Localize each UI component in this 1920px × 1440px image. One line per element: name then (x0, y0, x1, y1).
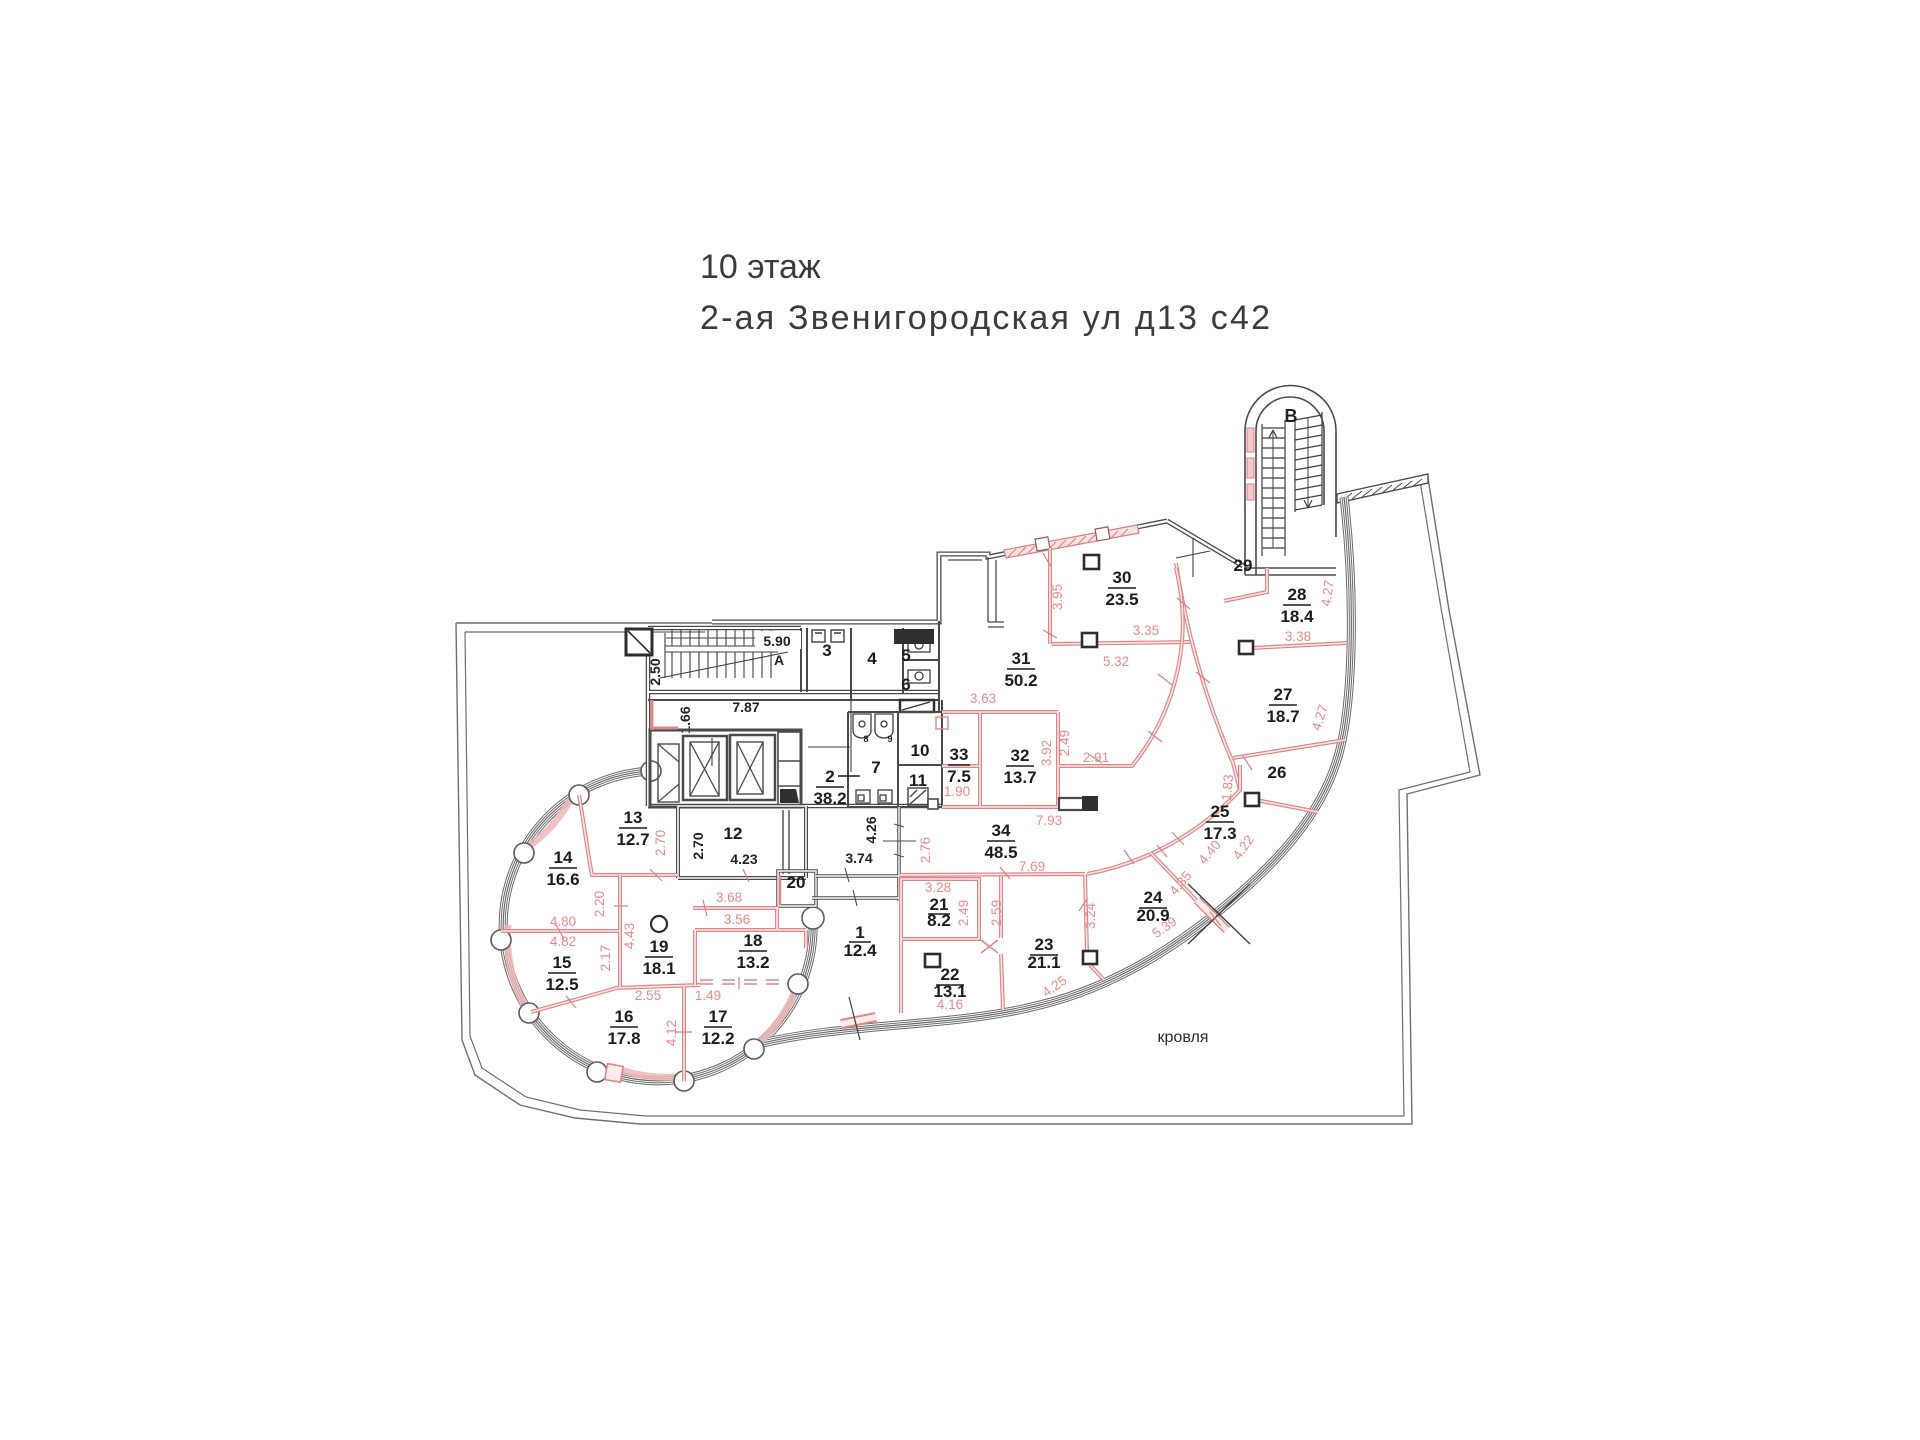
svg-text:4: 4 (867, 649, 877, 668)
svg-text:21.1: 21.1 (1027, 953, 1060, 972)
svg-text:18: 18 (744, 931, 763, 950)
svg-text:26: 26 (1268, 763, 1287, 782)
svg-text:4.23: 4.23 (730, 851, 757, 867)
svg-text:3.74: 3.74 (845, 850, 872, 866)
svg-text:7.69: 7.69 (1019, 859, 1045, 874)
svg-text:6: 6 (901, 675, 910, 694)
svg-text:50.2: 50.2 (1004, 671, 1037, 690)
svg-text:4.43: 4.43 (622, 923, 637, 949)
svg-text:3.38: 3.38 (1285, 629, 1311, 644)
svg-text:4.26: 4.26 (863, 816, 879, 843)
svg-text:3.92: 3.92 (1039, 740, 1054, 766)
svg-text:23: 23 (1035, 935, 1054, 954)
svg-text:25: 25 (1211, 802, 1230, 821)
svg-text:28: 28 (1288, 585, 1307, 604)
svg-text:11: 11 (909, 771, 927, 790)
svg-text:4.80: 4.80 (550, 914, 576, 929)
svg-text:2: 2 (825, 767, 834, 786)
svg-text:3.56: 3.56 (724, 912, 750, 927)
svg-text:17: 17 (709, 1007, 728, 1026)
svg-text:2.70: 2.70 (690, 832, 706, 859)
svg-text:1.49: 1.49 (695, 988, 721, 1003)
svg-text:2.20: 2.20 (592, 891, 607, 917)
svg-text:4.16: 4.16 (937, 997, 963, 1012)
svg-text:33: 33 (950, 745, 969, 764)
svg-text:5.32: 5.32 (1103, 654, 1129, 669)
svg-text:2.59: 2.59 (989, 900, 1004, 926)
svg-text:7: 7 (871, 758, 880, 777)
svg-text:3.28: 3.28 (925, 880, 951, 895)
svg-text:2.50: 2.50 (647, 658, 663, 685)
svg-text:18.4: 18.4 (1280, 607, 1314, 626)
svg-text:48.5: 48.5 (984, 843, 1017, 862)
svg-text:3.24: 3.24 (1083, 902, 1098, 929)
svg-text:15: 15 (553, 953, 572, 972)
svg-text:1.83: 1.83 (1219, 774, 1236, 801)
svg-text:1: 1 (855, 923, 864, 942)
svg-text:1.90: 1.90 (944, 784, 970, 799)
svg-text:4.12: 4.12 (664, 1020, 679, 1046)
svg-text:34: 34 (992, 821, 1011, 840)
svg-text:30: 30 (1113, 568, 1132, 587)
svg-text:20: 20 (787, 873, 806, 892)
svg-text:16.6: 16.6 (546, 870, 579, 889)
svg-text:14: 14 (554, 848, 573, 867)
svg-text:27: 27 (1274, 685, 1293, 704)
svg-text:2.91: 2.91 (1083, 750, 1109, 765)
svg-text:13: 13 (624, 808, 643, 827)
svg-text:9: 9 (887, 734, 892, 744)
svg-text:5.90: 5.90 (763, 633, 790, 649)
svg-text:8.2: 8.2 (927, 911, 951, 930)
svg-text:3.68: 3.68 (716, 890, 742, 905)
svg-text:31: 31 (1012, 649, 1031, 668)
svg-text:16: 16 (615, 1007, 634, 1026)
svg-text:12.7: 12.7 (616, 830, 649, 849)
svg-text:12.5: 12.5 (545, 975, 578, 994)
svg-text:13.7: 13.7 (1003, 768, 1036, 787)
svg-text:17.3: 17.3 (1203, 824, 1236, 843)
svg-text:23.5: 23.5 (1105, 590, 1138, 609)
svg-text:7.87: 7.87 (732, 699, 759, 715)
svg-text:2.76: 2.76 (918, 837, 933, 863)
svg-text:13.2: 13.2 (736, 953, 769, 972)
svg-text:3: 3 (822, 641, 831, 660)
svg-text:2.70: 2.70 (653, 830, 668, 856)
svg-text:В: В (1285, 406, 1298, 426)
svg-text:10 этаж: 10 этаж (700, 248, 821, 286)
svg-text:7.93: 7.93 (1036, 813, 1062, 828)
svg-text:кровля: кровля (1158, 1029, 1209, 1046)
svg-text:2.17: 2.17 (598, 945, 613, 971)
svg-text:2.55: 2.55 (635, 988, 661, 1003)
svg-text:12.2: 12.2 (701, 1029, 734, 1048)
svg-text:А: А (774, 652, 784, 668)
svg-text:24: 24 (1144, 888, 1163, 907)
svg-text:19: 19 (650, 937, 669, 956)
svg-text:2-ая Звенигородская ул д13 с42: 2-ая Звенигородская ул д13 с42 (700, 299, 1272, 337)
svg-text:32: 32 (1011, 746, 1030, 765)
svg-text:10: 10 (911, 741, 930, 760)
svg-text:12.4: 12.4 (843, 941, 877, 960)
svg-text:2.49: 2.49 (1057, 730, 1072, 756)
svg-text:8: 8 (863, 734, 868, 744)
svg-text:12: 12 (724, 824, 743, 843)
svg-text:18.7: 18.7 (1266, 707, 1299, 726)
svg-text:3.95: 3.95 (1050, 584, 1065, 610)
svg-text:3.63: 3.63 (970, 691, 996, 706)
svg-text:38.2: 38.2 (813, 789, 846, 808)
svg-text:5: 5 (901, 646, 910, 665)
svg-text:17.8: 17.8 (607, 1029, 640, 1048)
svg-text:18.1: 18.1 (642, 959, 675, 978)
svg-text:2.49: 2.49 (956, 900, 971, 926)
svg-text:3.35: 3.35 (1133, 623, 1159, 638)
svg-text:29: 29 (1234, 556, 1253, 575)
